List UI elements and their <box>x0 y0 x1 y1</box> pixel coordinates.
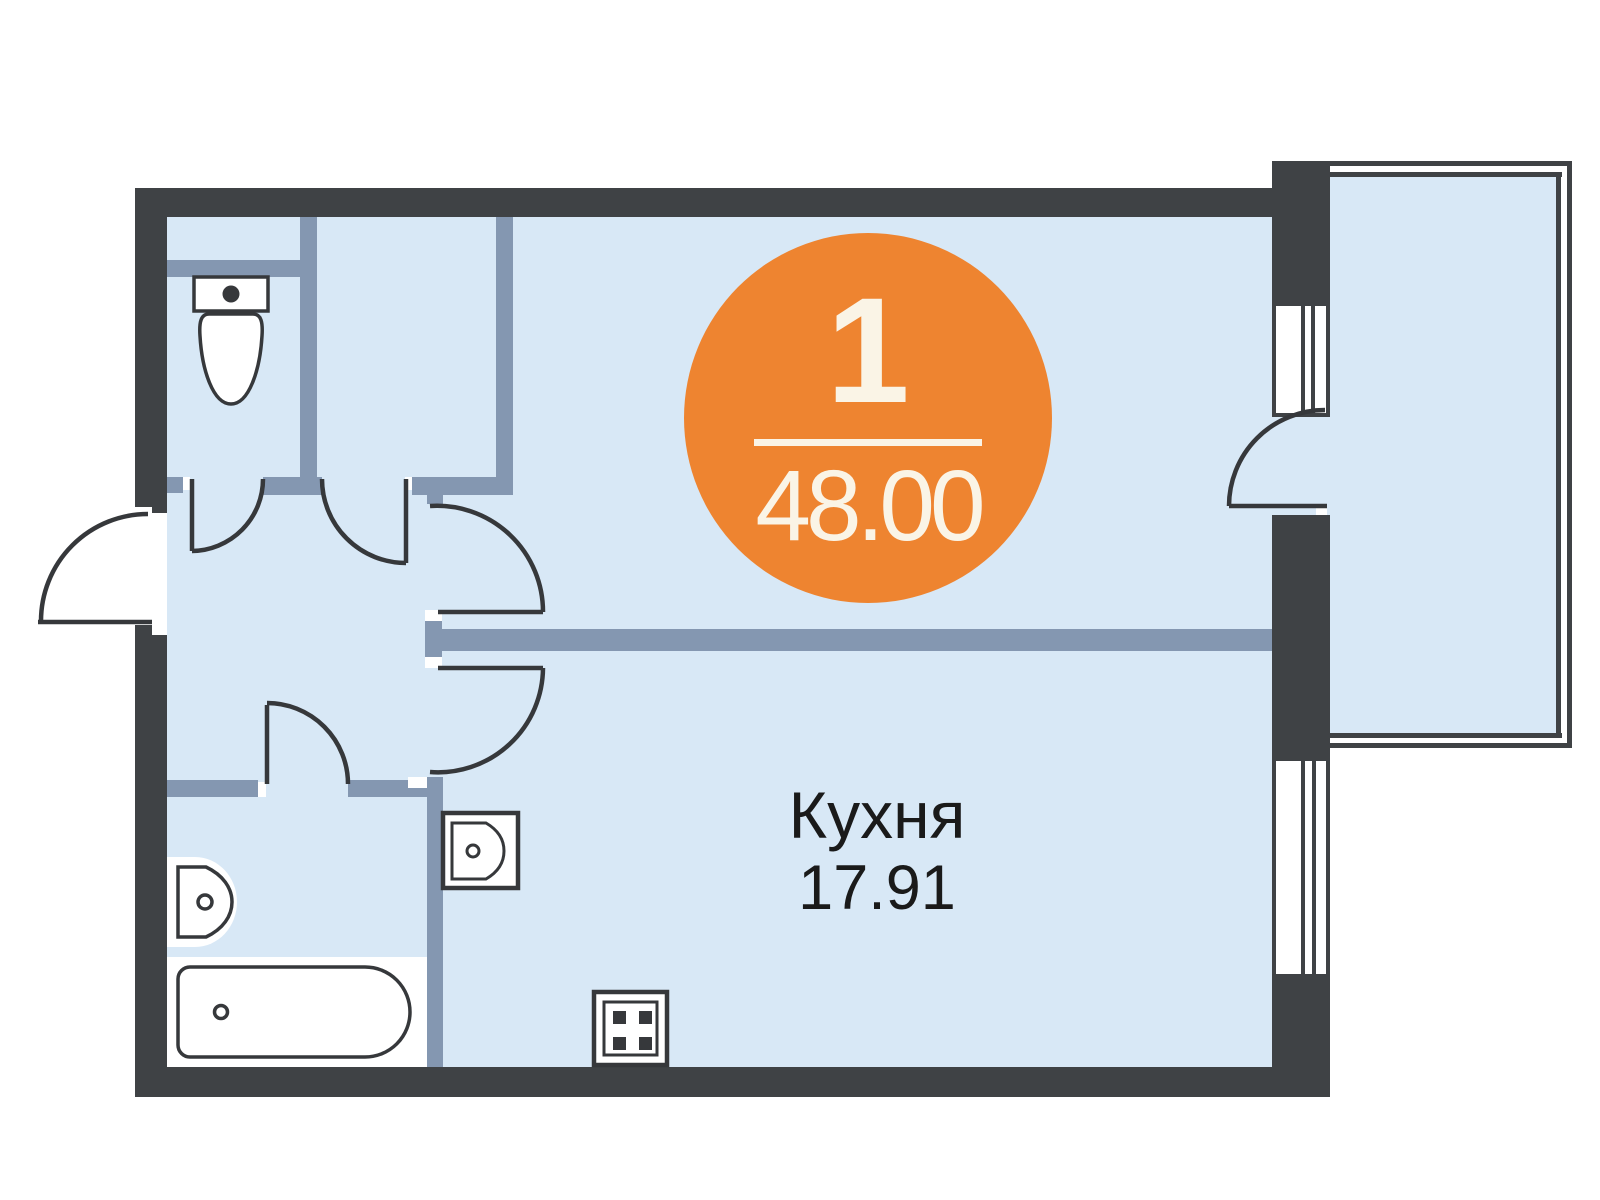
wall-left-lower <box>135 635 167 1097</box>
jamb-kitchen-wall-top <box>408 777 427 788</box>
wall-left-upper-step <box>152 507 167 513</box>
wall-right-mid <box>1272 515 1330 757</box>
kitchen-window-frame-right <box>1326 757 1330 978</box>
wall-bottom <box>135 1067 1330 1097</box>
balcony-frame-bottom-inner <box>1330 733 1562 738</box>
balcony-door-opening <box>1272 417 1330 515</box>
living-window-pane-2 <box>1311 302 1315 417</box>
jamb-bath-door <box>258 782 266 797</box>
living-window-frame-left <box>1272 302 1276 417</box>
balcony-frame-top-outer <box>1330 161 1572 166</box>
living-window-frame-right <box>1326 302 1330 417</box>
wall-bath-top-left <box>167 780 258 797</box>
wall-hall-foot-a <box>263 477 322 495</box>
jamb-wc-door <box>183 477 190 490</box>
balcony-frame-top-inner <box>1330 172 1562 177</box>
wall-foot-b-notch <box>427 495 443 504</box>
balcony-floor <box>1330 177 1556 733</box>
total-area: 48.00 <box>755 456 980 556</box>
kitchen-window-cap-top <box>1272 757 1330 761</box>
floor-plan: 1 48.00 Кухня 17.91 <box>0 0 1600 1200</box>
wall-top <box>135 188 1272 217</box>
kitchen-window-pane-2 <box>1312 757 1316 978</box>
wall-wc-niche <box>165 260 300 277</box>
wall-divider-jamb <box>425 621 442 659</box>
wall-left-upper <box>135 188 167 507</box>
balcony-frame-right-outer <box>1567 161 1572 748</box>
balcony-frame-bottom-outer <box>1330 743 1572 748</box>
rooms-count: 1 <box>826 275 909 425</box>
living-window-cap-top <box>1272 302 1330 306</box>
kitchen-name: Кухня <box>672 782 1082 848</box>
kitchen-window-pane-1 <box>1301 757 1305 978</box>
jamb-storage-door <box>405 477 412 490</box>
wall-hall-stub <box>167 477 183 493</box>
wall-living-kitchen-divider <box>442 629 1272 651</box>
jamb-divider-lower <box>425 657 442 668</box>
wall-hall-foot-b <box>412 477 513 495</box>
area-badge: 1 48.00 <box>684 233 1052 603</box>
jamb-balcony-door <box>1316 504 1327 515</box>
wall-right-bottom <box>1272 978 1330 1097</box>
balcony-frame-right-inner <box>1556 172 1561 737</box>
wall-kitchen-bath <box>427 777 443 1067</box>
living-window-cap-bottom <box>1272 413 1330 417</box>
badge-divider <box>754 439 982 446</box>
entrance-door <box>38 514 152 622</box>
living-window-pane-1 <box>1301 302 1305 417</box>
wall-right-top <box>1272 161 1330 302</box>
kitchen-area: 17.91 <box>672 857 1082 920</box>
jamb-divider-upper <box>425 610 442 621</box>
wall-wc-right <box>300 217 317 477</box>
wall-left-lower-step <box>135 625 152 635</box>
kitchen-window-cap-bottom <box>1272 974 1330 978</box>
kitchen-window-frame-left <box>1272 757 1276 978</box>
kitchen-label: Кухня 17.91 <box>672 782 1082 920</box>
wall-storage-right <box>496 217 513 477</box>
